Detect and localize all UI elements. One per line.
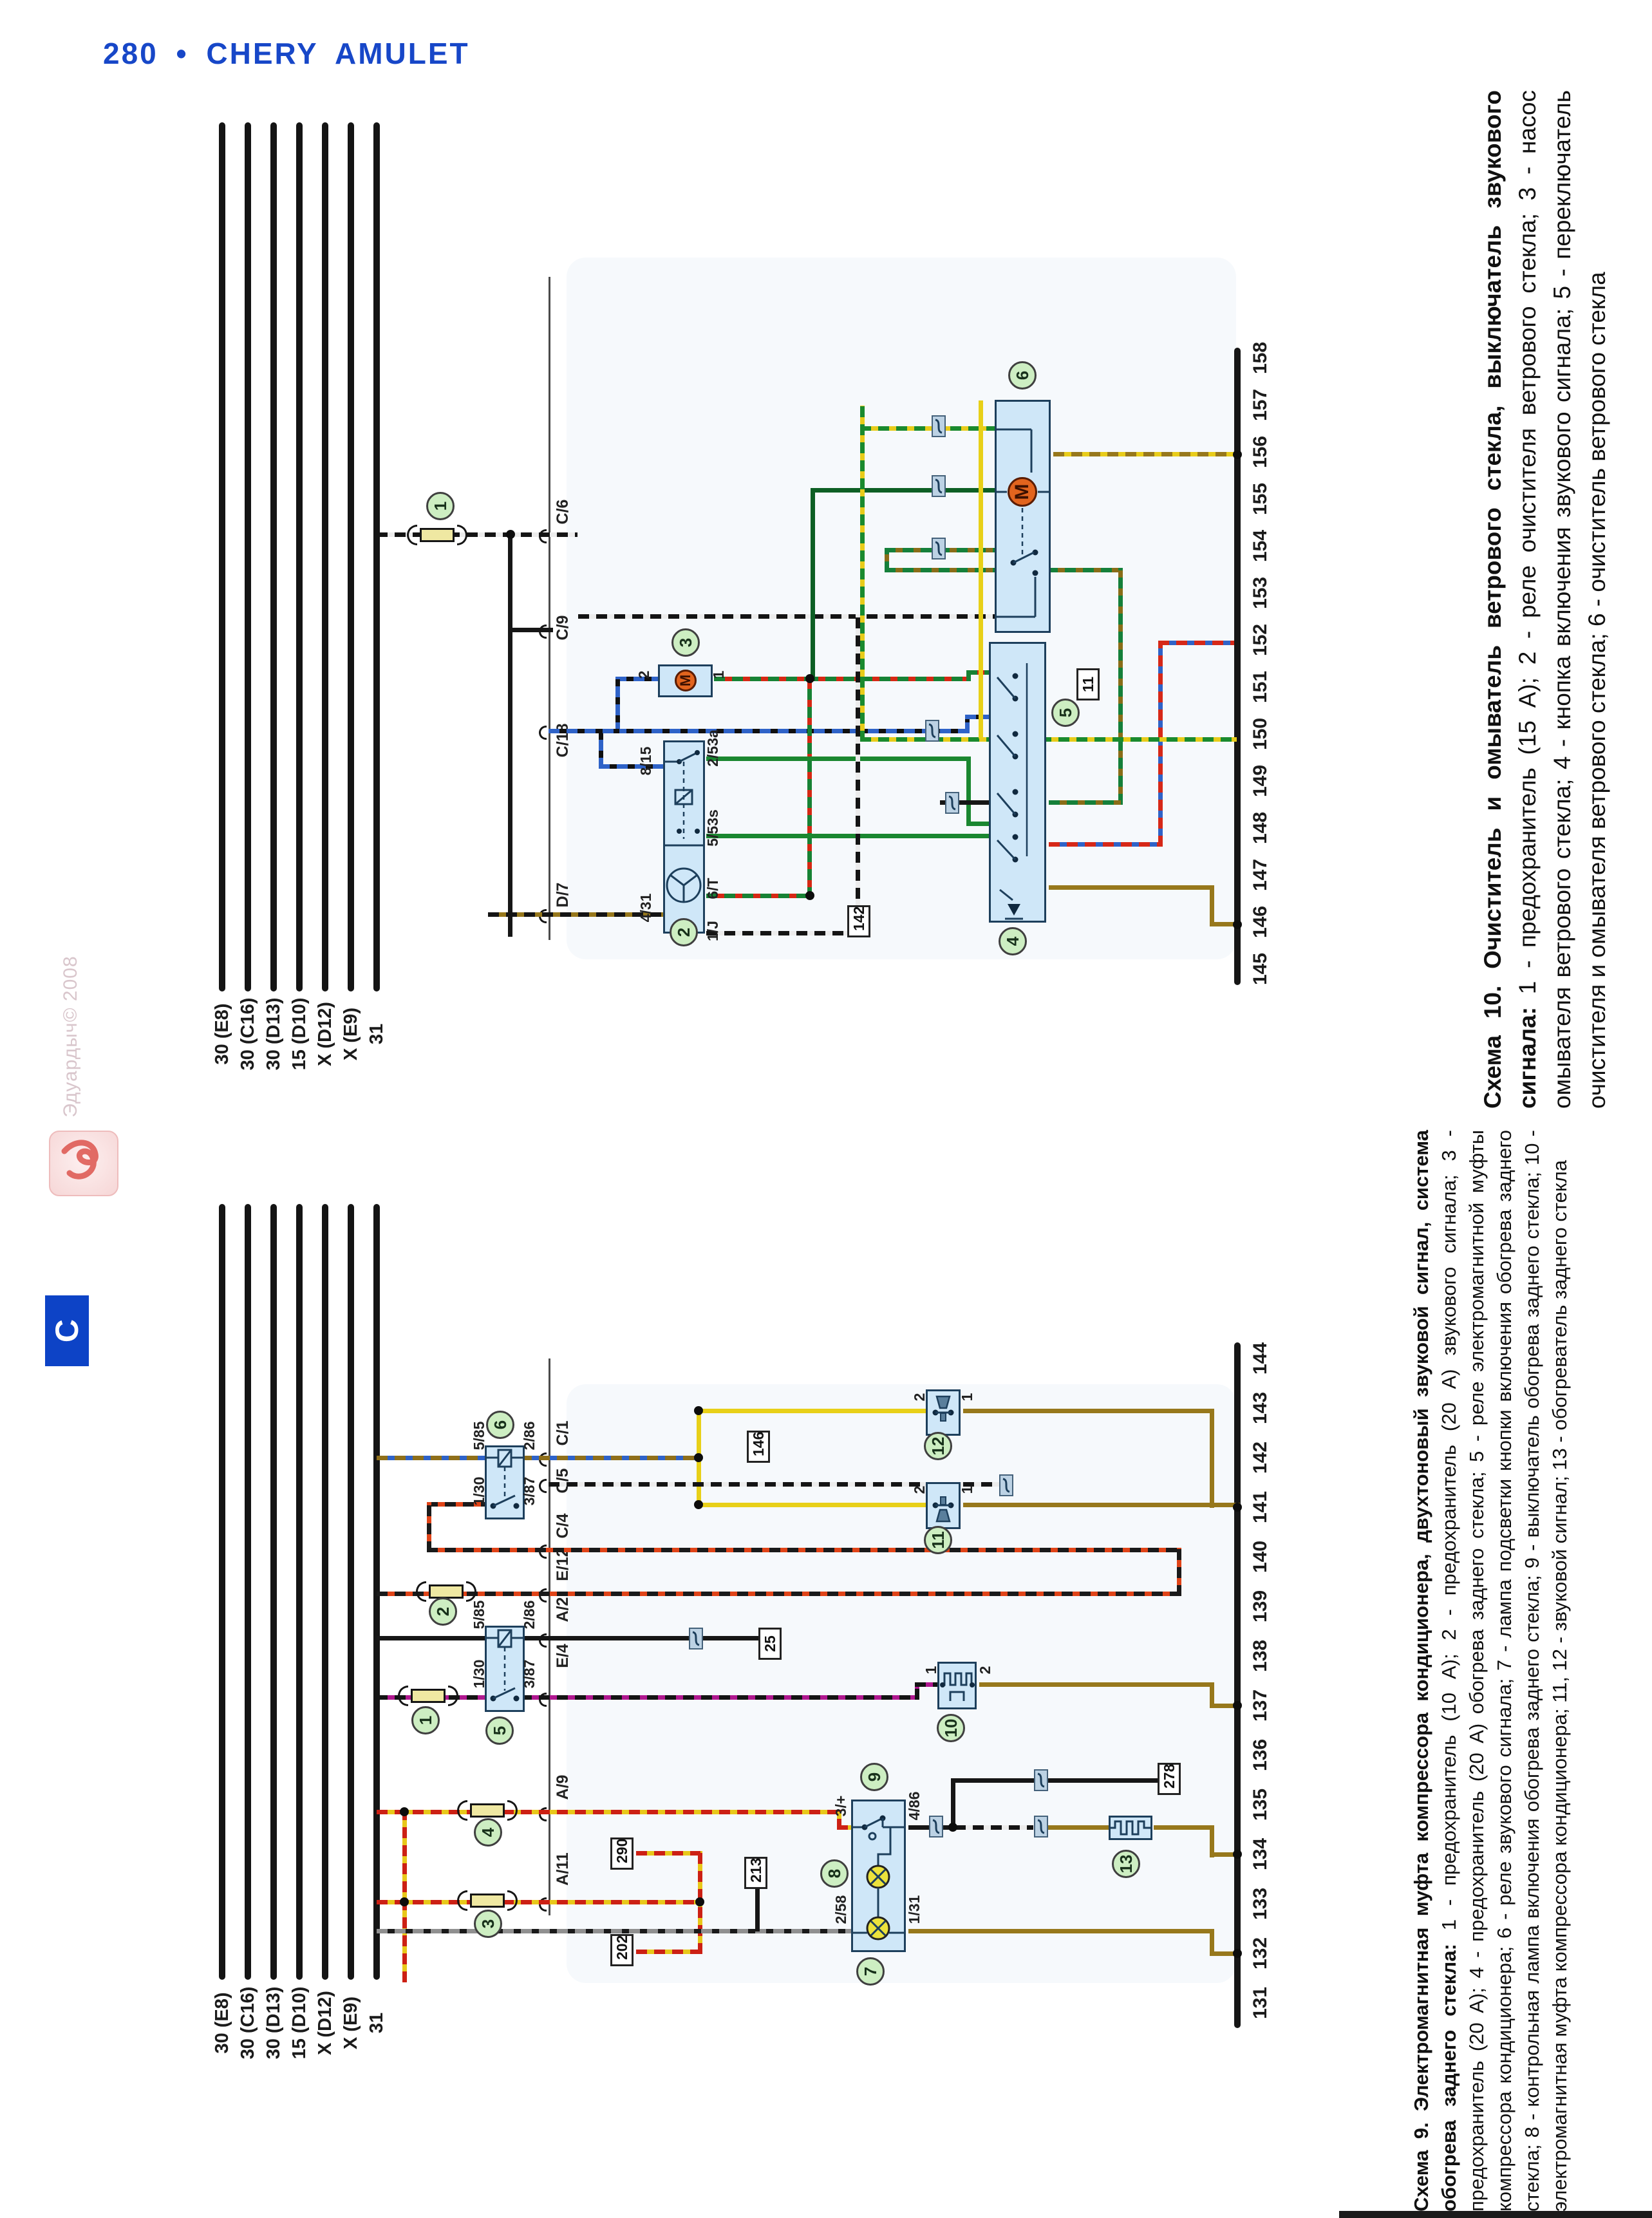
wire	[1158, 641, 1163, 847]
wire-ref-box: 202	[610, 1934, 634, 1966]
wire	[963, 1409, 1214, 1413]
wire-ref-number: 11	[1074, 675, 1102, 694]
component-ref-number: 6	[1010, 363, 1035, 388]
pin-label: 3/87	[519, 1629, 540, 1719]
wire	[1049, 885, 1214, 890]
horn-box	[926, 1389, 961, 1436]
component-ref-number: 2	[431, 1599, 455, 1624]
component-ref-badge: 5	[485, 1716, 514, 1745]
wire	[1210, 885, 1214, 926]
wire-ref-number: 213	[742, 1863, 770, 1883]
wire	[966, 757, 971, 826]
logo-swirl-icon	[50, 1132, 115, 1192]
bus-label: X (D12)	[315, 1978, 335, 2068]
wire	[955, 1825, 1033, 1830]
connector-label: C/18	[552, 695, 573, 785]
component-ref-number: 7	[858, 1959, 883, 1984]
junction-dot	[1233, 1701, 1242, 1710]
wire-ref-box: 11	[1076, 668, 1100, 700]
component-ref-number: 9	[862, 1765, 887, 1789]
component-ref-number: 6	[488, 1413, 512, 1437]
component-ref-number: 4	[476, 1820, 500, 1845]
wire-ref-box: 146	[747, 1431, 770, 1463]
connector-label: C/6	[552, 467, 573, 557]
bus-label: 30 (C16)	[238, 1978, 258, 2068]
component-ref-number: 2	[671, 920, 696, 945]
fuse-arc-icon	[407, 525, 417, 545]
component-ref-number: 5	[487, 1718, 512, 1743]
connector-splice-icon	[925, 720, 939, 742]
junction-dot	[694, 1406, 703, 1415]
wire	[860, 426, 999, 431]
scan-edge-artifact	[1339, 2211, 1652, 2218]
pin-label: 2	[909, 1445, 930, 1535]
bus-label: 30 (E8)	[212, 1978, 232, 2068]
connector-label: E/4	[552, 1611, 573, 1701]
junction-dot	[1233, 1949, 1242, 1958]
wire	[615, 677, 620, 733]
wire	[636, 1851, 700, 1856]
motor-icon: M	[675, 670, 697, 691]
junction-dot	[948, 1823, 957, 1832]
bus-line	[219, 1204, 225, 1980]
wire-ref-number: 278	[1155, 1769, 1183, 1789]
fuse-arc-icon	[457, 1890, 467, 1911]
relay-symbol-icon	[487, 1628, 523, 1710]
pin-label: 2/58	[831, 1865, 851, 1955]
pin-number: 158	[1250, 313, 1271, 403]
wire-ref-box: 278	[1158, 1763, 1181, 1795]
wire	[951, 1778, 1162, 1783]
wire	[1053, 452, 1240, 456]
junction-dot	[694, 1500, 703, 1509]
bus-line	[270, 122, 277, 992]
connector-splice-icon	[932, 475, 946, 497]
component-ref-badge: 10	[937, 1714, 965, 1742]
wire-ref-number: 290	[608, 1844, 636, 1863]
wire-ref-number: 202	[608, 1941, 636, 1960]
junction-dot	[400, 1897, 409, 1906]
pin-label: 2	[975, 1625, 995, 1715]
wire	[636, 1950, 700, 1954]
component-ref-badge: 4	[474, 1818, 502, 1847]
connector-splice-icon	[929, 1816, 943, 1837]
connector-splice-icon	[945, 792, 959, 814]
component-ref-number: 3	[476, 1912, 500, 1936]
pin-label: 3/87	[519, 1446, 540, 1536]
pin-label: 2	[634, 630, 654, 720]
bus-label: 30 (D13)	[263, 989, 284, 1079]
junction-dot	[1233, 1850, 1242, 1859]
wire	[856, 614, 860, 935]
wire	[811, 488, 999, 493]
connector-splice-icon	[932, 415, 946, 437]
wire	[951, 1778, 955, 1830]
component-ref-badge: 2	[670, 918, 698, 946]
component-ref-number: 10	[939, 1716, 963, 1740]
component-ref-number: 4	[1000, 929, 1025, 954]
connector-splice-icon	[999, 1474, 1013, 1496]
bus-line	[322, 1204, 328, 1980]
bus-line	[348, 1204, 354, 1980]
wire	[615, 729, 970, 733]
pin-label: 1/31	[904, 1865, 925, 1955]
wire	[1048, 1825, 1111, 1830]
bus-line	[219, 122, 225, 992]
connector-label: C/9	[552, 583, 573, 673]
wiper-relay-symbol-icon	[665, 742, 703, 932]
component-ref-number: 1	[413, 1708, 438, 1733]
wire	[807, 677, 968, 681]
connector-splice-icon	[932, 538, 946, 559]
component-ref-badge: 2	[429, 1597, 457, 1626]
wire	[1118, 568, 1123, 805]
connector-splice-icon	[1034, 1769, 1048, 1791]
wire	[1210, 1409, 1214, 1508]
bus-line	[373, 122, 380, 992]
wire	[402, 1810, 407, 1982]
fuse-arc-icon	[507, 1800, 518, 1821]
fuse-arc-icon	[398, 1686, 408, 1706]
wire	[979, 1682, 1212, 1687]
bus-label: 30 (C16)	[238, 989, 258, 1079]
bus-line	[348, 122, 354, 992]
wiper-switch-box	[989, 642, 1046, 923]
connector-arc-icon	[539, 1479, 547, 1493]
component-ref-badge: 3	[474, 1910, 502, 1938]
wiper-relay-box	[663, 740, 705, 934]
pin-rail	[1234, 348, 1241, 985]
wire	[508, 532, 512, 937]
wire	[377, 1810, 841, 1814]
wire	[1154, 1825, 1213, 1830]
pin-label: 1	[708, 630, 729, 720]
wire-ref-box: 213	[744, 1857, 767, 1889]
bus-line	[245, 122, 251, 992]
junction-dot	[1233, 450, 1242, 459]
ac-clutch-coil-icon	[939, 1664, 975, 1707]
pin-label: 1	[957, 1445, 977, 1535]
pin-label: 4/31	[635, 863, 656, 953]
watermark-logo-icon	[49, 1131, 118, 1196]
component-ref-badge: 7	[856, 1957, 885, 1986]
fuse-arc-icon	[416, 1581, 426, 1602]
wire	[377, 1929, 853, 1933]
wire	[811, 488, 815, 681]
bus-label: 31	[366, 1978, 387, 2068]
heater-element-box	[1109, 1816, 1152, 1840]
component-ref-number: 3	[673, 630, 698, 655]
bus-label: X (D12)	[315, 989, 335, 1079]
relay-symbol-icon	[487, 1447, 523, 1518]
wire	[965, 715, 991, 719]
wire	[377, 1900, 702, 1904]
bus-line	[322, 122, 328, 992]
component-ref-number: 13	[1114, 1852, 1138, 1876]
horn-symbol-icon	[928, 1484, 959, 1527]
connector-splice-icon	[1034, 1816, 1048, 1837]
wiper-motor-symbol-icon	[997, 402, 1049, 631]
component-ref-badge: 1	[411, 1706, 440, 1734]
bus-label: 15 (D10)	[289, 989, 310, 1079]
wiper-switch-symbol-icon	[991, 644, 1044, 921]
heater-switch-symbol-icon	[853, 1801, 904, 1950]
pin-label: 8/15	[635, 716, 656, 806]
heater-switch-box	[851, 1800, 906, 1952]
wire	[427, 1502, 431, 1552]
wire	[697, 1503, 928, 1507]
wire	[860, 406, 865, 742]
horn-box	[926, 1482, 961, 1529]
junction-dot	[805, 891, 814, 900]
bus-label: X (E9)	[341, 989, 361, 1079]
wire	[979, 400, 983, 738]
component-ref-badge: 13	[1112, 1850, 1140, 1878]
component-ref-badge: 1	[426, 492, 455, 520]
component-ref-badge: 3	[671, 628, 700, 657]
wire	[755, 1885, 760, 1931]
bus-label: X (E9)	[341, 1978, 361, 2068]
wire-ref-number: 25	[756, 1634, 784, 1653]
bus-label: 30 (E8)	[212, 989, 232, 1079]
manual-page: 280 • CHERY AMULET Эдуардыч© 2008 С Схем…	[0, 0, 1652, 2218]
wiper-motor-box	[995, 400, 1051, 633]
fuse-arc-icon	[457, 525, 467, 545]
wire	[807, 677, 812, 898]
chapter-tab: С	[45, 1295, 89, 1366]
wire	[1177, 1548, 1181, 1596]
pin-number: 144	[1250, 1313, 1271, 1404]
wire	[578, 614, 998, 619]
fuse-arc-icon	[507, 1890, 518, 1911]
wire	[963, 1503, 1240, 1507]
bus-label: 31	[366, 989, 387, 1079]
connector-label: D/7	[552, 850, 573, 940]
component-ref-badge: 9	[860, 1763, 888, 1791]
wire	[860, 737, 1237, 742]
component-ref-number: 5	[1053, 700, 1078, 725]
wire	[599, 729, 603, 769]
pin-label: 1	[921, 1625, 941, 1715]
caption-schema-9: Схема 9. Электромагнитная муфта компресс…	[1407, 1130, 1600, 2212]
wire	[377, 1592, 1180, 1596]
pin-label: 2	[909, 1352, 930, 1442]
junction-dot	[694, 1453, 703, 1462]
bus-line	[270, 1204, 277, 1980]
wire-ref-number: 146	[744, 1437, 773, 1456]
junction-dot	[695, 1897, 704, 1906]
component-ref-badge: 6	[1008, 361, 1037, 390]
pin-label: 1/30	[469, 1446, 489, 1536]
fuse-arc-icon	[457, 1800, 467, 1821]
fuse-arc-icon	[448, 1686, 458, 1706]
wire	[697, 1409, 928, 1413]
junction-dot	[1233, 920, 1242, 929]
component-ref-badge: 5	[1051, 699, 1080, 727]
wire	[427, 1548, 1181, 1552]
fuse-icon	[429, 1584, 464, 1599]
wire	[706, 834, 993, 838]
connector-arc-icon	[539, 726, 547, 740]
bus-label: 15 (D10)	[289, 1978, 310, 2068]
wire	[377, 1636, 761, 1640]
chapter-tab-letter: С	[32, 1309, 102, 1353]
wire	[1158, 641, 1234, 645]
connector-splice-icon	[689, 1628, 703, 1649]
pin-label: 4/86	[904, 1761, 925, 1851]
connector-label: A/9	[552, 1742, 573, 1832]
wire-ref-box: 25	[758, 1628, 782, 1660]
pin-label: 1/J	[702, 886, 723, 976]
pin-label: 3/+	[831, 1761, 851, 1851]
watermark-text: Эдуардыч© 2008	[60, 940, 82, 1133]
component-ref-badge: 4	[999, 927, 1027, 955]
fuse-icon	[420, 528, 455, 542]
wire	[706, 931, 861, 935]
fuse-icon	[470, 1803, 505, 1818]
ac-clutch-box	[937, 1662, 977, 1709]
page-header: 280 • CHERY AMULET	[103, 36, 470, 71]
component-ref-badge: 6	[486, 1411, 514, 1439]
bus-label: 30 (D13)	[263, 1978, 284, 2068]
wire-ref-number: 142	[845, 912, 873, 931]
wire	[549, 729, 619, 733]
bus-line	[296, 1204, 303, 1980]
junction-dot	[1233, 1503, 1242, 1512]
heater-element-icon	[1111, 1818, 1150, 1838]
wire-ref-box: 142	[847, 905, 870, 937]
wire	[966, 822, 992, 826]
wire	[908, 1929, 1212, 1933]
bus-line	[296, 122, 303, 992]
pin-label: 1	[957, 1352, 977, 1442]
pin-label: 1/30	[469, 1629, 489, 1719]
fuse-icon	[470, 1894, 505, 1908]
motor-letter: M	[1009, 479, 1035, 505]
bus-line	[245, 1204, 251, 1980]
motor-letter: M	[677, 672, 695, 690]
horn-symbol-icon	[928, 1391, 959, 1434]
wire	[706, 757, 970, 761]
junction-dot	[805, 674, 814, 683]
wire	[1049, 800, 1123, 805]
component-ref-number: 1	[428, 494, 453, 518]
connector-rail	[549, 277, 550, 940]
wire	[1049, 842, 1163, 847]
caption-10-body: 1 - предохранитель (15 А); 2 - реле очис…	[1514, 90, 1610, 1109]
wire-ref-box: 290	[610, 1837, 634, 1870]
caption-schema-10: Схема 10. Очиститель и омыватель ветрово…	[1476, 90, 1638, 1109]
pin-rail	[1234, 1342, 1241, 2028]
wire	[508, 628, 553, 632]
motor-icon: M	[1008, 477, 1037, 507]
junction-dot	[400, 1807, 409, 1816]
fuse-icon	[411, 1689, 446, 1703]
junction-dot	[506, 530, 515, 539]
